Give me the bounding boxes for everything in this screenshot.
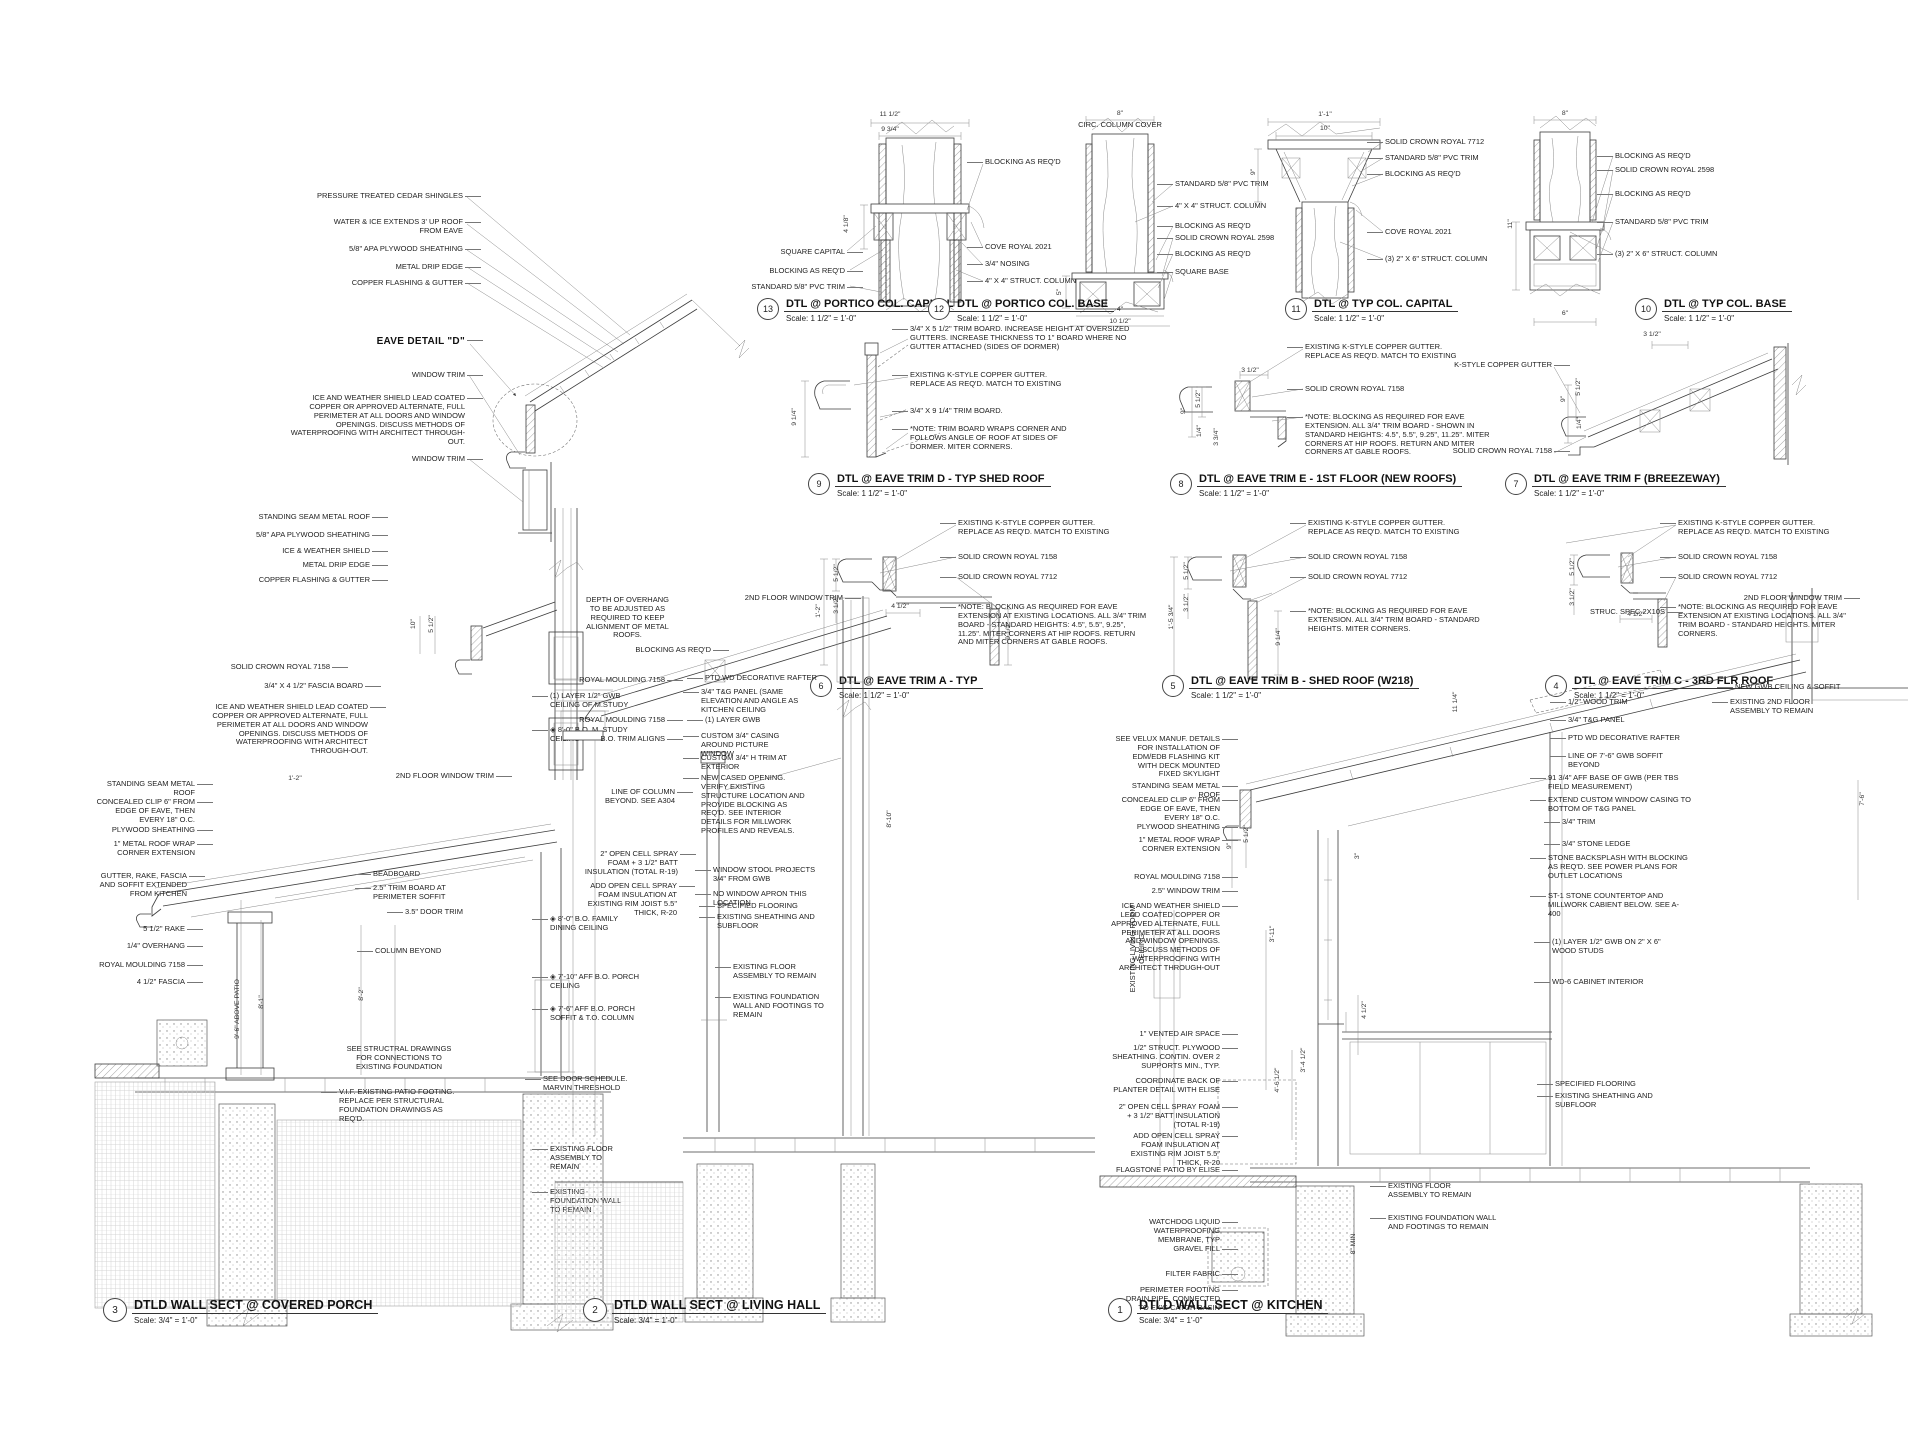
callout-label: 4 1/2" FASCIA [110,978,185,987]
dimension-label: 5 1/2" [1575,372,1583,402]
section-scale: Scale: 3/4" = 1'-0" [132,1316,378,1325]
callout-label: EXISTING FLOOR ASSEMBLY TO REMAIN [733,963,828,981]
callout-label: (1) LAYER 1/2" GWB ON 2" X 6" WOOD STUDS [1552,938,1684,956]
callout-label: CONCEALED CLIP 6" FROM EDGE OF EAVE, THE… [95,798,195,825]
callout-label: 3/4" X 4 1/2" FASCIA BOARD [213,682,363,691]
callout-label: 3/4" TRIM [1562,818,1652,827]
detail-9-titleblock: 9 DTL @ EAVE TRIM D - TYP SHED ROOFScale… [808,473,1051,498]
dimension-label: 10" [410,611,418,637]
callout-label: COORDINATE BACK OF PLANTER DETAIL WITH E… [1110,1077,1220,1095]
callout-label: WINDOW STOOL PROJECTS 3/4" FROM GWB [713,866,821,884]
dimension-label: 9" [1560,387,1568,411]
callout-label: SOLID CROWN ROYAL 7158 [1440,447,1552,456]
section-3-titleblock: 3 DTLD WALL SECT @ COVERED PORCHScale: 3… [103,1298,378,1325]
dimension-label: 1'-2" [275,775,315,783]
callout-label: ICE AND WEATHER SHIELD LEAD COATED COPPE… [1110,902,1220,973]
callout-label: EXISTING LIVING ROOM CEILING [1129,893,1147,1005]
callout-label: SPECIFIED FLOORING [1555,1080,1655,1089]
dimension-label: 7'-6" [1859,784,1867,814]
section-number: 3 [103,1298,127,1322]
callout-label: BLOCKING AS REQ'D [621,646,711,655]
callout-label: SPECIFIED FLOORING [717,902,812,911]
section-art [555,580,1100,1340]
callout-label: SEE STRUCTRAL DRAWINGS FOR CONNECTIONS T… [340,1045,458,1072]
callout-label: WINDOW TRIM [380,371,465,380]
callout-label: LINE OF 7'-6" GWB SOFFIT BEYOND [1568,752,1680,770]
callout-label: EXISTING K-STYLE COPPER GUTTER. REPLACE … [910,371,1070,389]
callout-label: CONCEALED CLIP 6" FROM EDGE OF EAVE, THE… [1115,796,1220,823]
callout-label: (1) LAYER GWB [705,716,795,725]
dimension-label: 8'-10" [886,802,894,836]
dimension-label: 5 1/2" [428,609,436,639]
callout-label: 91 3/4" AFF BASE OF GWB (PER TBS FIELD M… [1548,774,1693,792]
dimension-label: 1/4" [1576,411,1584,435]
dimension-label: 8" [1535,110,1595,118]
callout-label: METAL DRIP EDGE [343,263,463,272]
callout-label: 2" OPEN CELL SPRAY FOAM + 3 1/2" BATT IN… [583,850,678,877]
callout-label: SOLID CROWN ROYAL 7158 [1308,553,1468,562]
callout-label: STANDING SEAM METAL ROOF [235,513,370,522]
callout-label: ADD OPEN CELL SPRAY FOAM INSULATION AT E… [577,882,677,917]
callout-label: (3) 2" X 6" STRUCT. COLUMN [1615,250,1765,259]
callout-label: EXISTING K-STYLE COPPER GUTTER. REPLACE … [1678,519,1838,537]
callout-label: STRUC. SPEC 2X10S [1575,608,1665,617]
dimension-label: 1'-1" [1285,111,1365,119]
callout-label: ROYAL MOULDING 7158 [575,676,665,685]
dimension-label: 8'-1" [258,987,266,1017]
detail-number: 8 [1170,473,1192,495]
dimension-label: 8" [1090,110,1150,118]
callout-label: FLAGSTONE PATIO BY ELISE [1115,1166,1220,1175]
callout-label: METAL DRIP EDGE [265,561,370,570]
detail-10-titleblock: 10 DTL @ TYP COL. BASEScale: 1 1/2" = 1'… [1635,298,1792,323]
section-number: 2 [583,1298,607,1322]
detail-scale: Scale: 1 1/2" = 1'-0" [1532,489,1726,498]
callout-label: BLOCKING AS REQ'D [1615,152,1765,161]
dimension-label: 1/4" [1196,419,1204,443]
dimension-label: 9 1/4" [791,400,799,434]
detail-number: 7 [1505,473,1527,495]
dimension-label: 4'-6 1/2" [1274,1058,1282,1102]
callout-label: BLOCKING AS REQ'D [1615,190,1765,199]
callout-label: 2.5" TRIM BOARD AT PERIMETER SOFFIT [373,884,458,902]
callout-label: ROYAL MOULDING 7158 [1115,873,1220,882]
callout-label: SQUARE CAPITAL [735,248,845,257]
callout-label: 3/4" STONE LEDGE [1562,840,1662,849]
detail-7-titleblock: 7 DTL @ EAVE TRIM F (BREEZEWAY)Scale: 1 … [1505,473,1726,498]
detail-title: DTL @ TYP COL. CAPITAL [1312,298,1458,312]
section-title: DTLD WALL SECT @ COVERED PORCH [132,1298,378,1314]
callout-label: SOLID CROWN ROYAL 2598 [1615,166,1765,175]
callout-label: 2" OPEN CELL SPRAY FOAM + 3 1/2" BATT IN… [1115,1103,1220,1130]
callout-label: 5/8" APA PLYWOOD SHEATHING [313,245,463,254]
dimension-label: 3 1/2" [1230,367,1270,375]
dimension-label: 9" [1250,160,1258,184]
callout-label: EXISTING FLOOR ASSEMBLY TO REMAIN [1388,1182,1488,1200]
dimension-label: 3" [1354,846,1362,866]
callout-label: STANDARD 5/8" PVC TRIM [1615,218,1765,227]
callout-label: 2ND FLOOR WINDOW TRIM [1730,594,1842,603]
callout-label: 1" VENTED AIR SPACE [1115,1030,1220,1039]
callout-label: V.I.F. EXISTING PATIO FOOTING. REPLACE P… [339,1088,467,1123]
callout-label: ICE & WEATHER SHIELD [255,547,370,556]
callout-label: COPPER FLASHING & GUTTER [333,279,463,288]
dimension-label: 5 1/2" [1195,384,1203,414]
callout-label: STONE BACKSPLASH WITH BLOCKING AS REQ'D.… [1548,854,1688,881]
callout-label: 5/8" APA PLYWOOD SHEATHING [235,531,370,540]
callout-label: BLOCKING AS REQ'D [725,267,845,276]
callout-label: K-STYLE COPPER GUTTER [1440,361,1552,370]
dimension-label: 11 1/4" [1452,684,1460,720]
detail-scale: Scale: 1 1/2" = 1'-0" [835,489,1051,498]
callout-label: COLUMN BEYOND [375,947,460,956]
callout-label: PERIMETER FOOTING DRAIN PIPE. CONNECTED … [1115,1286,1220,1313]
callout-label: ROYAL MOULDING 7158 [575,716,665,725]
callout-label: GUTTER, RAKE, FASCIA AND SOFFIT EXTENDED… [95,872,187,899]
section-scale: Scale: 3/4" = 1'-0" [1137,1316,1328,1325]
callout-label: 3.5" DOOR TRIM [405,908,485,917]
callout-label: STANDING SEAM METAL ROOF [95,780,195,798]
callout-label: SOLID CROWN ROYAL 7158 [190,663,330,672]
detail-number: 11 [1285,298,1307,320]
dimension-label: 5 1/2" [1569,552,1577,582]
callout-label: 1/4" OVERHANG [105,942,185,951]
dimension-label: 9'-6" ABOVE PATIO [234,978,242,1040]
callout-label: 2ND FLOOR WINDOW TRIM [382,772,494,781]
detail-number: 9 [808,473,830,495]
detail-title: DTL @ EAVE TRIM F (BREEZEWAY) [1532,473,1726,487]
detail-scale: Scale: 1 1/2" = 1'-0" [1662,314,1792,323]
callout-label: 2ND FLOOR WINDOW TRIM [735,594,843,603]
callout-label: PLYWOOD SHEATHING [1115,823,1220,832]
dimension-label: 3 3/4" [1213,422,1221,452]
dimension-label: 9" [1180,399,1188,423]
detail-title: DTL @ EAVE TRIM D - TYP SHED ROOF [835,473,1051,487]
callout-label: EXTEND CUSTOM WINDOW CASING TO BOTTOM OF… [1548,796,1693,814]
detail-number: 12 [928,298,950,320]
section-1-kitchen: 1 DTLD WALL SECT @ KITCHENScale: 3/4" = … [1100,580,1910,1340]
callout-label: 1" METAL ROOF WRAP CORNER EXTENSION [95,840,195,858]
callout-label: LINE OF COLUMN BEYOND. SEE A304 [593,788,675,806]
dimension-label: 4" [1095,306,1145,314]
detail-number: 13 [757,298,779,320]
callout-label: EXISTING SHEATHING AND SUBFLOOR [1555,1092,1683,1110]
callout-label: BEADBOARD [373,870,443,879]
callout-label: ST-1 STONE COUNTERTOP AND MILLWORK CABIE… [1548,892,1688,919]
callout-label: 1/2" STRUCT. PLYWOOD SHEATHING. CONTIN. … [1100,1044,1220,1071]
section-art [1100,580,1910,1340]
detail-scale: Scale: 1 1/2" = 1'-0" [1197,489,1462,498]
callout-label: 3/4" T&G PANEL [1568,716,1668,725]
dimension-label: 4 1/8" [843,207,851,241]
callout-label: 5 1/2" RAKE [115,925,185,934]
callout-label: WD-6 CABINET INTERIOR [1552,978,1674,987]
callout-label: CIRC. COLUMN COVER [1050,121,1190,130]
callout-label: SOLID CROWN ROYAL 7158 [1678,553,1838,562]
callout-label: ICE AND WEATHER SHIELD LEAD COATED COPPE… [208,703,368,756]
callout-label: GRAVEL FILL [1145,1245,1220,1254]
dimension-label: 5 1/2" [1243,819,1251,849]
detail-number: 10 [1635,298,1657,320]
callout-label: EXISTING FOUNDATION WALL AND FOOTINGS TO… [733,993,833,1020]
detail-11-titleblock: 11 DTL @ TYP COL. CAPITALScale: 1 1/2" =… [1285,298,1458,323]
detail-title: DTL @ PORTICO COL. BASE [955,298,1114,312]
callout-label: NEW CASED OPENING. VERIFY EXISTING STRUC… [701,774,809,836]
section-title: DTLD WALL SECT @ LIVING HALL [612,1298,826,1314]
callout-label: CUSTOM 3/4" H TRIM AT EXTERIOR [701,754,803,772]
callout-label: WATER & ICE EXTENDS 3' UP ROOF FROM EAVE [313,218,463,236]
dimension-label: 10" [1292,125,1358,133]
callout-label: 3/4" X 9 1/4" TRIM BOARD. [910,407,1070,416]
callout-label: EXISTING K-STYLE COPPER GUTTER. REPLACE … [1308,519,1468,537]
callout-label: EAVE DETAIL "D" [340,336,465,348]
callout-label: 3/4" T&G PANEL (SAME ELEVATION AND ANGLE… [701,688,816,715]
callout-label: STANDARD 5/8" PVC TRIM [710,283,845,292]
dimension-label: 4 1/2" [1361,995,1369,1025]
callout-label: PTD WD DECORATIVE RAFTER [1568,734,1693,743]
section-2-titleblock: 2 DTLD WALL SECT @ LIVING HALLScale: 3/4… [583,1298,826,1325]
callout-label: *NOTE: TRIM BOARD WRAPS CORNER AND FOLLO… [910,425,1095,452]
callout-label: EXISTING SHEATHING AND SUBFLOOR [717,913,842,931]
callout-label: PRESSURE TREATED CEDAR SHINGLES [313,192,463,201]
dimension-label: 3 1/2" [1632,331,1672,339]
detail-title: DTL @ EAVE TRIM E - 1ST FLOOR (NEW ROOFS… [1197,473,1462,487]
dimension-label: 5" [1056,280,1064,304]
callout-label: WATCHDOG LIQUID WATERPROOFING MEMBRANE, … [1125,1218,1220,1245]
dimension-label: 3'-11" [1269,917,1277,951]
callout-label: B.O. TRIM ALIGNS [575,735,665,744]
callout-label: 1" METAL ROOF WRAP CORNER EXTENSION [1115,836,1220,854]
section-scale: Scale: 3/4" = 1'-0" [612,1316,826,1325]
dimension-label: 9 3/4" [860,126,920,134]
callout-label: DEPTH OF OVERHANG TO BE ADJUSTED AS REQU… [580,596,675,640]
callout-label: PLYWOOD SHEATHING [95,826,195,835]
callout-label: COPPER FLASHING & GUTTER [240,576,370,585]
detail-8-titleblock: 8 DTL @ EAVE TRIM E - 1ST FLOOR (NEW ROO… [1170,473,1462,498]
dimension-label: 8'-2" [358,979,366,1009]
dimension-label: 11" [1507,209,1515,239]
dimension-label: 3'-4 1/2" [1300,1038,1308,1082]
dimension-label: 8" MIN [1350,1226,1358,1262]
callout-label: FILTER FABRIC [1145,1270,1220,1279]
callout-label: NEW GWB CEILING & SOFFIT [1735,683,1845,692]
callout-label: SEE VELUX MANUF. DETAILS FOR INSTALLATIO… [1115,735,1220,779]
callout-label: EXISTING 2ND FLOOR ASSEMBLY TO REMAIN [1730,698,1848,716]
dimension-label: 11 1/2" [855,111,925,119]
drawing-sheet: PRESSURE TREATED CEDAR SHINGLESWATER & I… [0,0,1920,1440]
callout-label: PTD WD DECORATIVE RAFTER [705,674,830,683]
detail-scale: Scale: 1 1/2" = 1'-0" [1312,314,1458,323]
detail-title: DTL @ TYP COL. BASE [1662,298,1792,312]
detail-10-typ-col-base: 10 DTL @ TYP COL. BASEScale: 1 1/2" = 1'… [1500,110,1920,340]
section-2-living-hall: 2 DTLD WALL SECT @ LIVING HALLScale: 3/4… [555,580,1100,1340]
callout-label: ADD OPEN CELL SPRAY FOAM INSULATION AT E… [1110,1132,1220,1167]
callout-label: 1/2" WOOD TRIM [1568,698,1668,707]
detail-7-eave-trim-f: 7 DTL @ EAVE TRIM F (BREEZEWAY)Scale: 1 … [1440,325,1920,520]
callout-label: ROYAL MOULDING 7158 [95,961,185,970]
callout-label: EXISTING FOUNDATION WALL AND FOOTINGS TO… [1388,1214,1500,1232]
dimension-label: 9" [1226,834,1234,858]
dimension-label: 6" [1540,310,1590,318]
